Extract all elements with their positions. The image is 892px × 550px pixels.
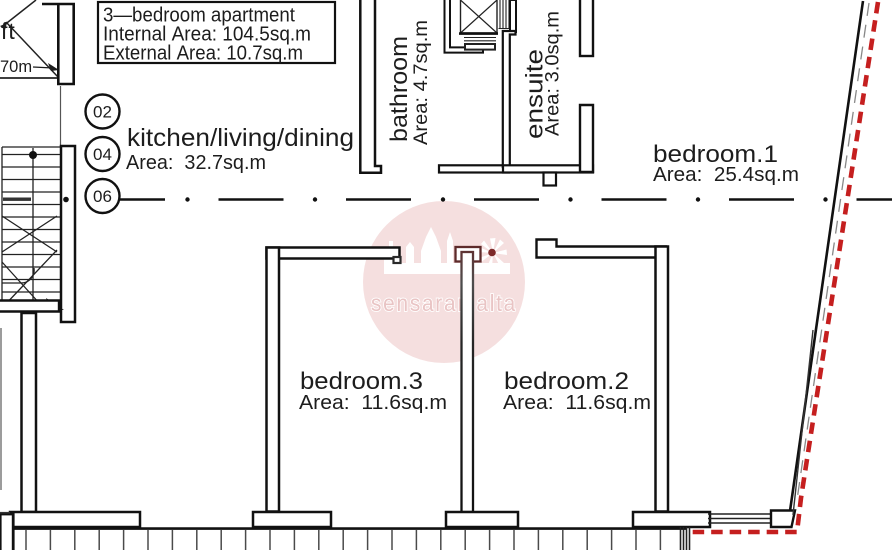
svg-text:External Area: 10.7sq.m: External Area: 10.7sq.m <box>103 43 303 65</box>
svg-text:bedroom.3: bedroom.3 <box>300 368 423 395</box>
svg-text:06: 06 <box>93 187 112 206</box>
svg-text:Area: 3.0sq.m: Area: 3.0sq.m <box>542 11 564 136</box>
svg-text:kitchen/living/dining: kitchen/living/dining <box>127 124 354 152</box>
svg-text:Area: 11.6sq.m: Area: 11.6sq.m <box>299 392 447 414</box>
svg-text:ft: ft <box>1 18 16 44</box>
svg-text:Area: 25.4sq.m: Area: 25.4sq.m <box>653 164 799 186</box>
svg-text:Area: 11.6sq.m: Area: 11.6sq.m <box>503 392 651 414</box>
svg-text:Area: 4.7sq.m: Area: 4.7sq.m <box>410 20 432 145</box>
svg-text:70m: 70m <box>0 58 32 76</box>
svg-text:bathroom: bathroom <box>386 36 413 142</box>
svg-text:04: 04 <box>93 145 112 164</box>
svg-text:02: 02 <box>93 103 112 122</box>
svg-text:Area: 32.7sq.m: Area: 32.7sq.m <box>126 152 266 174</box>
svg-text:sensaramalta: sensaramalta <box>371 290 517 316</box>
svg-text:bedroom.2: bedroom.2 <box>504 368 629 395</box>
